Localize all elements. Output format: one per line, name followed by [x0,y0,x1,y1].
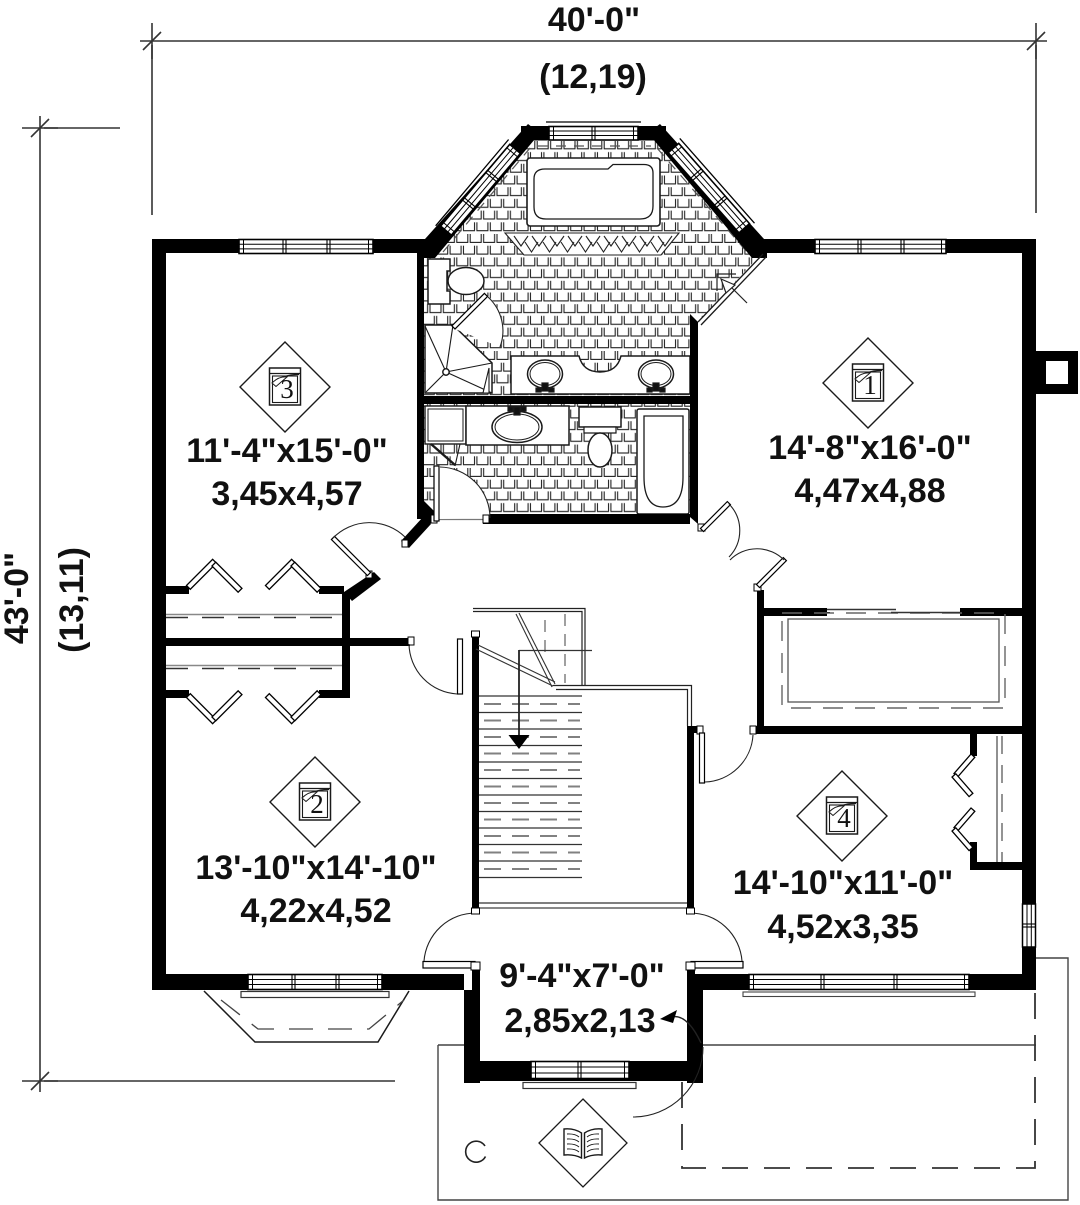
svg-text:3: 3 [280,374,294,404]
svg-text:3,45x4,57: 3,45x4,57 [211,475,362,513]
svg-text:4,52x3,35: 4,52x3,35 [767,908,918,946]
svg-text:1: 1 [863,370,877,400]
svg-text:2,85x2,13: 2,85x2,13 [504,1002,655,1040]
svg-text:9'-4"x7'-0": 9'-4"x7'-0" [499,957,665,995]
svg-text:(13,11): (13,11) [53,547,91,653]
svg-text:4: 4 [837,803,851,833]
svg-text:11'-4"x15'-0": 11'-4"x15'-0" [186,432,388,470]
svg-text:(12,19): (12,19) [539,58,647,96]
svg-text:2: 2 [310,789,324,819]
svg-text:14'-10"x11'-0": 14'-10"x11'-0" [733,864,953,902]
svg-text:13'-10"x14'-10": 13'-10"x14'-10" [195,849,436,887]
svg-text:43'-0": 43'-0" [0,552,36,644]
svg-text:14'-8"x16'-0": 14'-8"x16'-0" [768,429,971,467]
svg-text:4,47x4,88: 4,47x4,88 [794,472,945,510]
svg-text:40'-0": 40'-0" [548,1,640,39]
svg-text:4,22x4,52: 4,22x4,52 [240,892,391,930]
